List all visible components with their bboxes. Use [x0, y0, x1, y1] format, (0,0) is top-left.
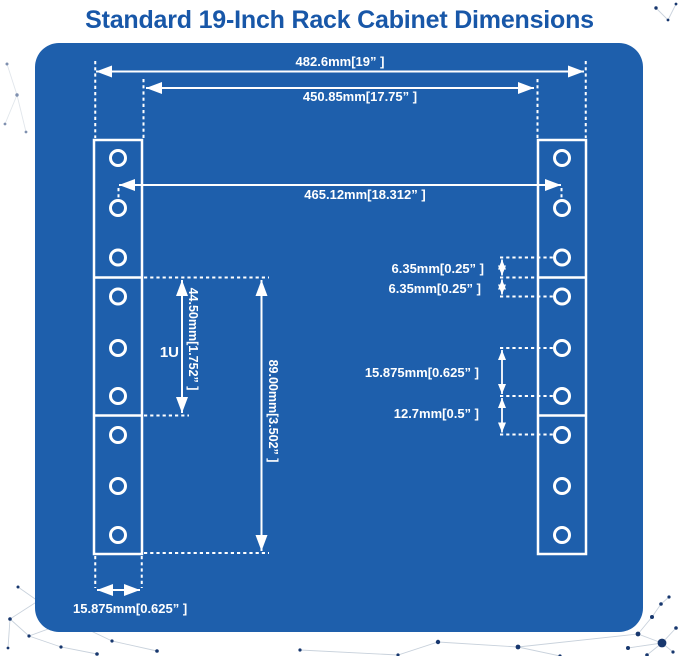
dim-flange-width-label: 15.875mm[0.625” ]: [73, 601, 187, 616]
dim-inner-width-label: 450.85mm[17.75” ]: [303, 89, 417, 104]
dim-three-hole-span-label: 89.00mm[3.502” ]: [266, 360, 280, 463]
dim-outer-width-label: 482.6mm[19” ]: [296, 54, 385, 69]
dim-hole-pitch-across-units-label: 12.7mm[0.5” ]: [394, 406, 479, 421]
rack-dimensions-infographic: Standard 19-Inch Rack Cabinet Dimensions: [0, 0, 679, 656]
rack-diagram: 482.6mm[19” ] 450.85mm[17.75” ] 465.12mm…: [0, 0, 679, 656]
dim-hole-pitch-label: 15.875mm[0.625” ]: [365, 365, 479, 380]
constellation-top-right: [654, 3, 677, 22]
blueprint-panel: [35, 43, 643, 632]
unit-label: 1U: [160, 344, 179, 361]
dim-hole-center-width-label: 465.12mm[18.312” ]: [304, 187, 425, 202]
constellation-top-left: [4, 63, 28, 134]
dim-unit-height-label: 44.50mm[1.752” ]: [186, 288, 200, 391]
dim-hole-to-unit-edge-bottom-label: 6.35mm[0.25” ]: [389, 281, 482, 296]
dim-hole-to-unit-edge-top-label: 6.35mm[0.25” ]: [392, 261, 485, 276]
